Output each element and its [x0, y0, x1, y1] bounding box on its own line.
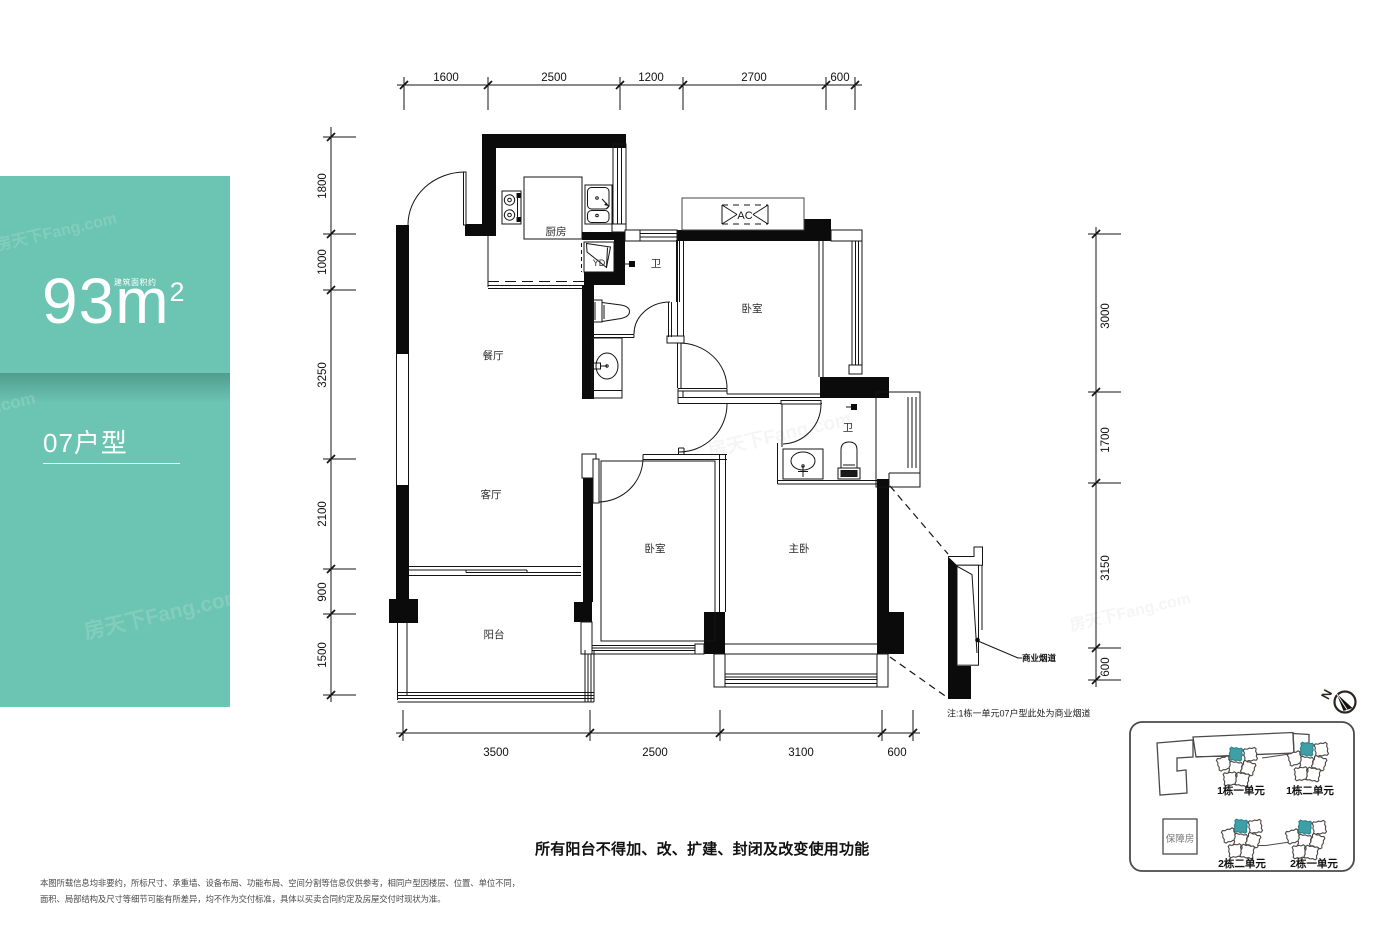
svg-text:厨房: 厨房 [546, 225, 567, 238]
svg-text:卫: 卫 [843, 422, 854, 434]
svg-text:600: 600 [830, 72, 849, 84]
svg-text:2100: 2100 [317, 501, 329, 527]
svg-text:2栋二单元: 2栋二单元 [1218, 857, 1266, 870]
svg-text:餐厅: 餐厅 [483, 349, 504, 362]
svg-text:YD: YD [593, 258, 606, 268]
svg-text:2500: 2500 [642, 747, 668, 759]
svg-text:N: N [1319, 687, 1336, 702]
svg-text:1600: 1600 [433, 72, 459, 84]
svg-text:卧室: 卧室 [645, 542, 666, 555]
svg-text:2700: 2700 [741, 72, 767, 84]
svg-text:商业烟道: 商业烟道 [1022, 653, 1057, 663]
svg-text:900: 900 [317, 582, 329, 601]
svg-text:卫: 卫 [651, 258, 662, 270]
svg-text:600: 600 [887, 747, 906, 759]
svg-text:1500: 1500 [317, 642, 329, 668]
svg-text:3000: 3000 [1100, 303, 1112, 329]
svg-text:1200: 1200 [638, 72, 664, 84]
svg-text:1700: 1700 [1100, 427, 1112, 453]
svg-text:2栋一单元: 2栋一单元 [1290, 857, 1338, 870]
svg-text:卧室: 卧室 [742, 302, 763, 315]
svg-text:1000: 1000 [317, 249, 329, 275]
svg-text:2500: 2500 [541, 72, 567, 84]
svg-text:阳台: 阳台 [484, 628, 505, 641]
svg-text:3250: 3250 [317, 362, 329, 388]
svg-text:注:1栋一单元07户型此处为商业烟道: 注:1栋一单元07户型此处为商业烟道 [947, 708, 1091, 719]
svg-text:3500: 3500 [483, 747, 509, 759]
svg-text:600: 600 [1100, 657, 1112, 676]
svg-text:主卧: 主卧 [789, 542, 810, 555]
svg-text:客厅: 客厅 [481, 488, 502, 501]
svg-text:1栋一单元: 1栋一单元 [1217, 784, 1265, 797]
svg-text:1800: 1800 [317, 173, 329, 199]
svg-text:AC: AC [737, 210, 752, 222]
svg-text:1栋二单元: 1栋二单元 [1286, 784, 1334, 797]
svg-text:3100: 3100 [788, 747, 814, 759]
svg-text:3150: 3150 [1100, 555, 1112, 581]
svg-text:保障房: 保障房 [1166, 833, 1195, 845]
